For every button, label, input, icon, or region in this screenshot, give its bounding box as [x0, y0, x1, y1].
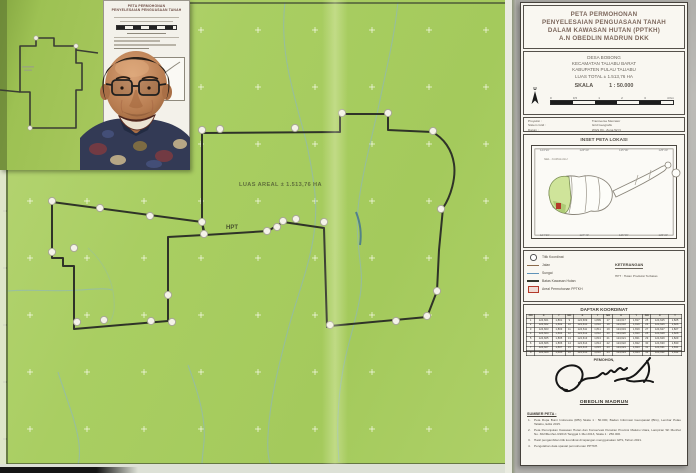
legend-item: Batas Kawasan Hutan	[527, 277, 611, 285]
legend-item-label: Batas Kawasan Hutan	[542, 279, 576, 283]
vertex-marker	[198, 218, 205, 225]
vertex-marker	[423, 312, 430, 319]
legend-panel-area: PETA PERMOHONANPENYELESAIAN PENGUASAAN T…	[516, 0, 696, 473]
vertex-marker	[168, 318, 175, 325]
inset-bottom-ticks: 124°20'124°40'125°00'125°20'	[540, 233, 668, 237]
scan-shadow-strip	[0, 467, 138, 473]
map-title-box: PETA PERMOHONANPENYELESAIAN PENGUASAAN T…	[523, 5, 685, 49]
title-block-sheet: PETA PERMOHONANPENYELESAIAN PENGUASAAN T…	[520, 2, 688, 466]
paper-fold-highlight	[322, 0, 348, 473]
vertex-marker	[273, 223, 280, 230]
scalebar: 00,51234 Km	[550, 96, 674, 108]
photo-doc-scalebar	[116, 25, 177, 30]
inset-tick: 125°20'	[659, 233, 668, 237]
vertex-marker	[70, 244, 77, 251]
inset-tick: 124°40'	[580, 233, 589, 237]
coordinate-table-body: 1124,601 1,8019 124,6091,809 17124,617 1…	[527, 319, 682, 356]
map-title-line: DALAM KAWASAN HUTAN (PPTKH)	[524, 27, 684, 35]
keterangan-line: HPT : Hutan Produksi Terbatas	[615, 274, 681, 278]
inset-tick: 125°00'	[619, 233, 628, 237]
vertex-marker	[164, 291, 171, 298]
vertex-marker	[73, 318, 80, 325]
vertex-marker	[48, 197, 55, 204]
legend-box: Titik Koordinat Jalan Sungai	[523, 250, 685, 302]
sea-label: SEL. CAPALULU	[544, 157, 568, 161]
applicant-photo: PETA PERMOHONAN PENYELESAIAN PENGUASAAN …	[0, 0, 190, 170]
inset-tick: 124°20'	[540, 233, 549, 237]
legend-symbol-icon	[527, 286, 539, 292]
vertex-marker	[433, 287, 440, 294]
location-scale-box: DESA BOBONGKECAMATAN TALIABU BARATKABUPA…	[523, 51, 685, 115]
applicant-portrait	[80, 34, 190, 170]
scale-label: SKALA	[575, 83, 594, 89]
scale-value: 1 : 50.000	[609, 83, 633, 89]
vertex-marker	[279, 217, 286, 224]
map-sources-title: SUMBER PETA :	[527, 412, 681, 416]
legend-item-label: Titik Koordinat	[542, 255, 564, 259]
inset-map-frame: 124°20'124°40'125°00'125°20' 124°20'124°…	[531, 145, 677, 239]
coordinate-table: NOXYNOXYNOXYNOXY 1124,601 1,8019 124,609…	[526, 314, 682, 356]
legend-item-label: Sungai	[542, 271, 553, 275]
photo-doc-title-line: PENYELESAIAN PENGUASAAN TANAH	[108, 8, 185, 12]
location-lines: DESA BOBONGKECAMATAN TALIABU BARATKABUPA…	[524, 55, 684, 80]
vertex-marker	[96, 204, 103, 211]
legend-item: Sungai	[527, 269, 611, 277]
vertex-marker	[100, 316, 107, 323]
inset-tick: 125°00'	[619, 148, 628, 152]
scalebar-tick: 0,5	[573, 96, 577, 100]
vertex-marker	[147, 317, 154, 324]
legend-symbol-icon	[527, 262, 539, 268]
projection-value: WGS 84 - Zona 52 N	[592, 128, 680, 132]
projection-values: Transverse MercatorGrid GeografisWGS 84 …	[592, 119, 680, 130]
scale-row: SKALA 1 : 50.000	[524, 83, 684, 89]
vertex-marker	[392, 317, 399, 324]
legend-items: Titik Koordinat Jalan Sungai	[527, 253, 611, 299]
forest-zone-label: HPT	[226, 225, 238, 231]
vertex-marker	[292, 215, 299, 222]
map-sources-list: Peta Rupa Bumi Indonesia (RBI) Skala 1 :…	[527, 418, 681, 449]
projection-label: Datum :	[528, 128, 546, 132]
vertex-marker	[384, 109, 391, 116]
signature-block: PEMOHON, OBEDLIN MADRUN	[523, 354, 685, 408]
scalebar-strip	[550, 100, 674, 105]
inset-tick: 124°20'	[540, 148, 549, 152]
keterangan-title: KETERANGAN	[615, 262, 643, 269]
legend-item: Titik Koordinat	[527, 253, 611, 261]
scalebar-tick: 2	[621, 96, 623, 100]
signature-name: OBEDLIN MADRUN	[523, 400, 685, 405]
coordinate-table-title: DAFTAR KOORDINAT	[526, 307, 682, 312]
vertex-marker	[437, 205, 444, 212]
north-arrow-icon	[530, 91, 540, 105]
vertex-marker	[429, 127, 436, 134]
area-size-label: LUAS AREAL ± 1.513,76 HA	[239, 182, 322, 188]
location-line: LUAS TOTAL ± 1.513,76 HA	[524, 74, 684, 80]
scalebar-tick: 1	[598, 96, 600, 100]
map-source-item: Pengolahan data spasial permohonan PPTKH…	[527, 444, 681, 448]
vertex-marker	[48, 248, 55, 255]
projection-box: Proyeksi :Sistem Grid :Datum : Transvers…	[523, 117, 685, 132]
map-source-item: Peta Rupa Bumi Indonesia (RBI) Skala 1 :…	[527, 418, 681, 427]
inset-tick: 124°40'	[580, 148, 589, 152]
vertex-marker	[198, 126, 205, 133]
legend-symbol-icon	[527, 254, 539, 260]
map-source-item: Peta Penunjukan Kawasan Hutan dan Konser…	[527, 428, 681, 437]
legend-symbol-icon	[527, 270, 539, 276]
inset-island-map	[535, 153, 687, 229]
legend-symbol-icon	[527, 278, 539, 284]
legend-item-label: Areal Permohonan PPTKH	[542, 287, 583, 291]
scalebar-tick: 0	[550, 96, 552, 100]
map-title-line: PETA PERMOHONAN	[524, 11, 684, 19]
map-sources-block: SUMBER PETA : Peta Rupa Bumi Indonesia (…	[523, 410, 685, 463]
map-source-item: Hasil pengambilan titik koordinat di lap…	[527, 438, 681, 442]
scalebar-tick: 3	[644, 96, 646, 100]
signature-scribble	[547, 356, 667, 400]
projection-labels: Proyeksi :Sistem Grid :Datum :	[528, 119, 546, 130]
legend-item-label: Jalan	[542, 263, 550, 267]
coordinate-table-box: DAFTAR KOORDINAT NOXYNOXYNOXYNOXY 1124,6…	[523, 304, 685, 352]
inset-top-ticks: 124°20'124°40'125°00'125°20'	[540, 148, 668, 152]
vertex-marker	[216, 125, 223, 132]
inset-tick: 125°20'	[659, 148, 668, 152]
inset-title: INSET PETA LOKASI	[527, 138, 681, 143]
vertex-marker	[146, 212, 153, 219]
inset-location-box: INSET PETA LOKASI 124°20'124°40'125°00'1…	[523, 134, 685, 248]
inset-location-marker	[556, 203, 561, 209]
vertex-marker	[291, 124, 298, 131]
scalebar-tick: 4 Km	[667, 96, 674, 100]
legend-item: Jalan	[527, 261, 611, 269]
scanned-map-document: LUAS AREAL ± 1.513,76 HA HPT	[0, 0, 696, 473]
north-arrow: U	[529, 87, 541, 111]
legend-item: Areal Permohonan PPTKH	[527, 285, 611, 293]
vertex-marker	[263, 227, 270, 234]
keterangan-block: KETERANGAN HPT : Hutan Produksi Terbatas	[611, 253, 681, 299]
vertex-marker	[200, 230, 207, 237]
map-title-line: A.N OBEDLIN MADRUN DKK	[524, 35, 684, 43]
map-title-line: PENYELESAIAN PENGUASAAN TANAH	[524, 19, 684, 27]
